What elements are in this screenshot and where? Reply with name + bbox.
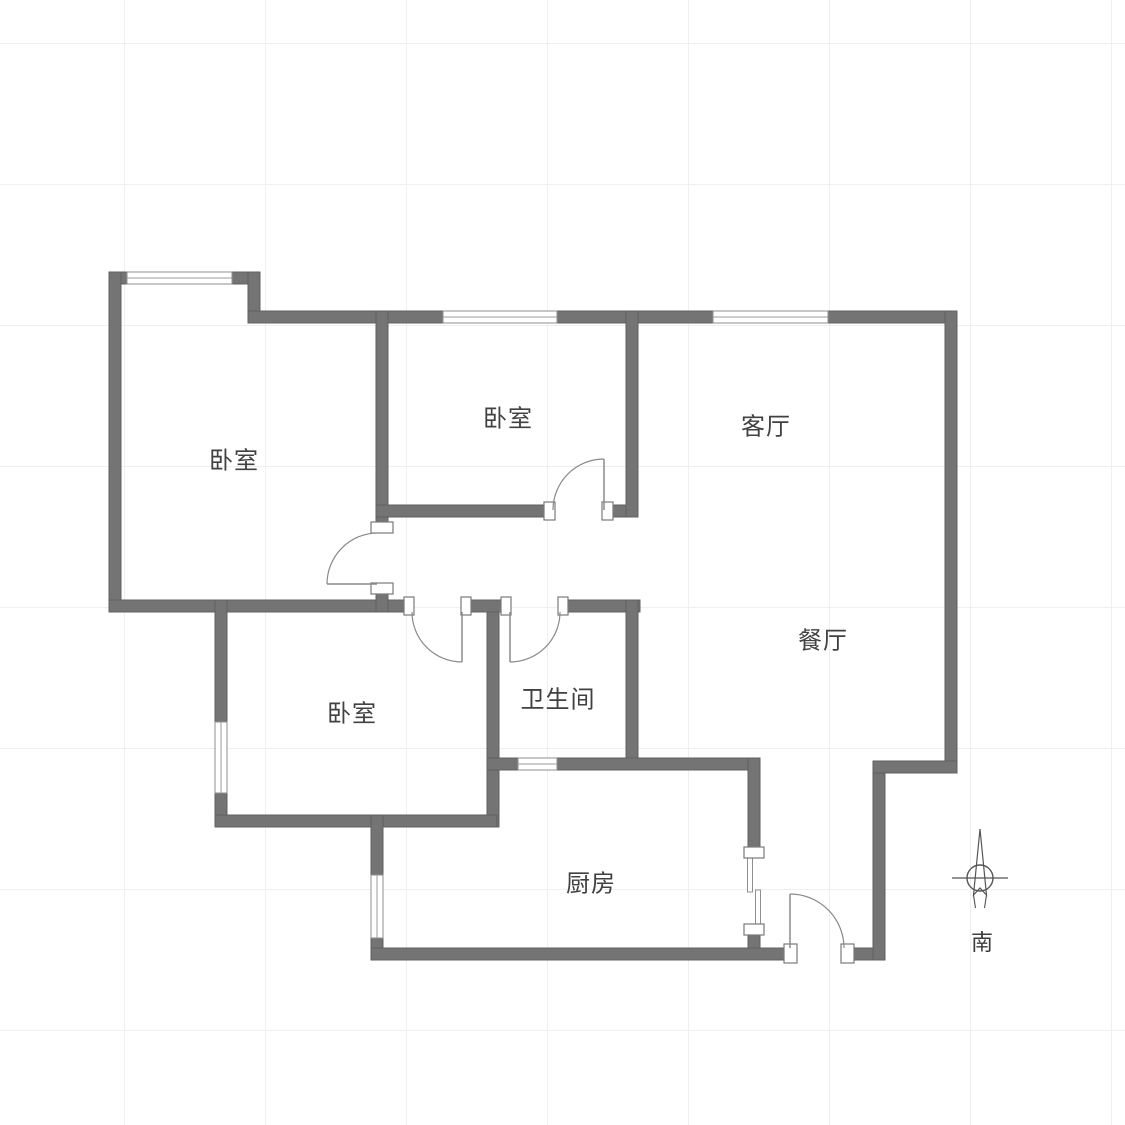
compass-south-label: 南 [971, 925, 993, 957]
wall-kitchen-right-upper [748, 758, 760, 858]
sliding-door-panel-1 [748, 856, 753, 892]
compass-tail-right [985, 895, 987, 908]
door-swing-bathroom [510, 612, 560, 662]
door-swing-bedroom-tl [327, 533, 377, 584]
room-label-bedroom-middle: 卧室 [483, 399, 533, 434]
wall-top-main [248, 311, 957, 323]
wall-outer-right [945, 311, 957, 773]
jamb-sliding-top [744, 847, 764, 858]
compass-needle [974, 829, 987, 895]
sliding-door-kitchen [748, 856, 761, 926]
floor-plan-canvas: 卧室 卧室 客厅 餐厅 卧室 卫生间 厨房 南 [0, 0, 1125, 1125]
wall-dining-step [873, 761, 957, 773]
wall-bedroom-divider-upper [376, 311, 388, 533]
room-label-bedroom-bottom-left: 卧室 [327, 694, 377, 729]
wall-midbedroom-right [626, 311, 638, 517]
wall-bathroom-left [487, 612, 499, 827]
wall-bottom-a [371, 948, 785, 960]
room-label-dining-room: 餐厅 [798, 621, 848, 656]
walls [109, 272, 957, 960]
room-label-living-room: 客厅 [741, 407, 791, 442]
room-label-bedroom-top-left: 卧室 [209, 441, 259, 476]
wall-foyer-right [873, 761, 885, 960]
jamb-entrance-right [841, 944, 854, 963]
door-swing-bedroom-bl [412, 612, 462, 662]
jamb-bedroom-tl-top [371, 522, 393, 533]
room-label-bathroom: 卫生间 [521, 680, 596, 715]
sliding-door-panel-2 [756, 890, 761, 926]
jamb-sliding-bottom [744, 924, 764, 935]
wall-midbedroom-bottom-a [376, 505, 554, 517]
wall-bedroom3-bottom [215, 815, 497, 827]
wall-bathroom-right [626, 600, 638, 770]
compass-icon [952, 829, 1008, 908]
wall-hall-bottom-a [109, 600, 413, 612]
room-label-kitchen: 厨房 [566, 864, 616, 899]
door-swing-entrance [790, 894, 844, 948]
wall-outer-left [109, 272, 121, 612]
compass-tail-left [974, 895, 976, 908]
door-swing-bedroom-mid [553, 459, 604, 510]
floor-plan-svg [0, 0, 1125, 1125]
